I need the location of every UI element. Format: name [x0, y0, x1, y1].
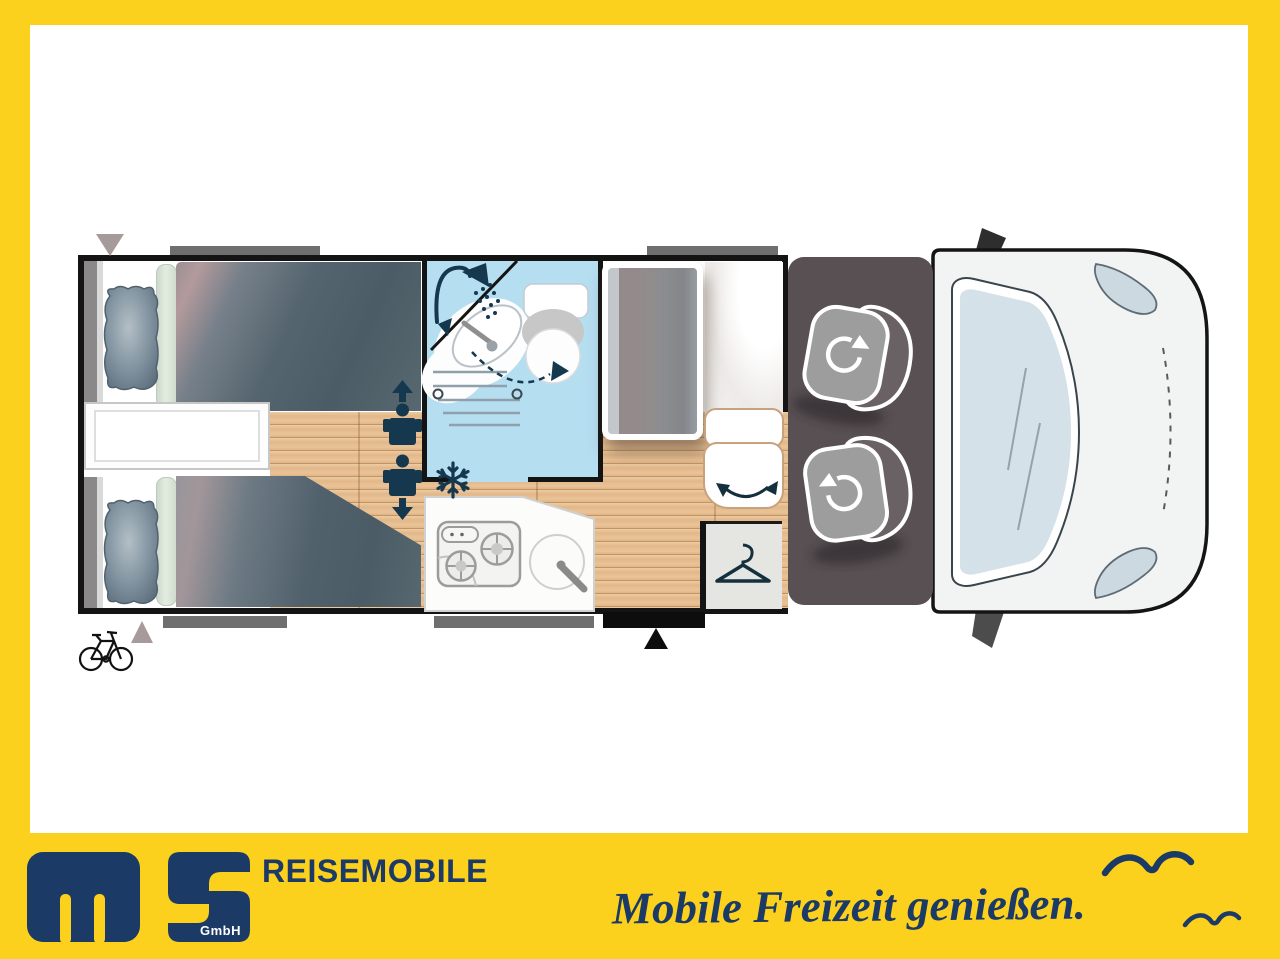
awning-triangle-marker	[96, 234, 124, 256]
tall-cabinet	[705, 262, 783, 427]
washroom	[422, 256, 603, 482]
swivel-seat-1	[791, 296, 919, 434]
seagull-icons	[1095, 845, 1255, 945]
brand-slogan: Mobile Freizeit genießen.	[612, 878, 1086, 935]
bed2-blanket-roll	[156, 477, 177, 606]
swivel-seat-2	[797, 432, 919, 569]
head-wall-panel	[84, 261, 97, 402]
awning-triangle-marker	[131, 621, 153, 643]
wing-mirror-bottom-icon	[972, 610, 1004, 648]
logo-m-slot	[94, 894, 105, 944]
cab-seats	[786, 292, 946, 572]
head-wall-trim	[97, 261, 103, 402]
seagull-icon-large	[1105, 854, 1191, 873]
logo-m-slot	[60, 894, 71, 944]
seat-cushion	[801, 303, 892, 407]
bedside-step-chest	[84, 402, 270, 470]
bedside-step-top	[94, 410, 260, 462]
bed1-blanket-roll	[156, 264, 177, 408]
entry-step	[603, 612, 705, 628]
swivel-unit	[703, 442, 784, 509]
head-wall-panel	[84, 477, 97, 608]
seagull-icon-small	[1185, 913, 1239, 925]
logo-m-block	[27, 852, 140, 942]
wardrobe-wall	[700, 521, 706, 609]
seat-cushion	[802, 442, 890, 544]
vehicle-front	[930, 218, 1220, 663]
entry-triangle-marker	[644, 628, 668, 649]
wardrobe	[704, 521, 782, 609]
fridge-tv-cabinet	[602, 262, 703, 440]
head-wall-trim	[97, 477, 103, 608]
window-marker-bar	[163, 616, 287, 628]
window-marker-bar	[434, 616, 594, 628]
bed1-duvet	[176, 262, 421, 411]
logo-gmbh-label: GmbH	[200, 923, 241, 938]
page: GmbH REISEMOBILE Mobile Freizeit genieße…	[0, 0, 1280, 959]
washroom-door-opening	[452, 477, 528, 482]
brand-title: REISEMOBILE	[262, 853, 488, 890]
